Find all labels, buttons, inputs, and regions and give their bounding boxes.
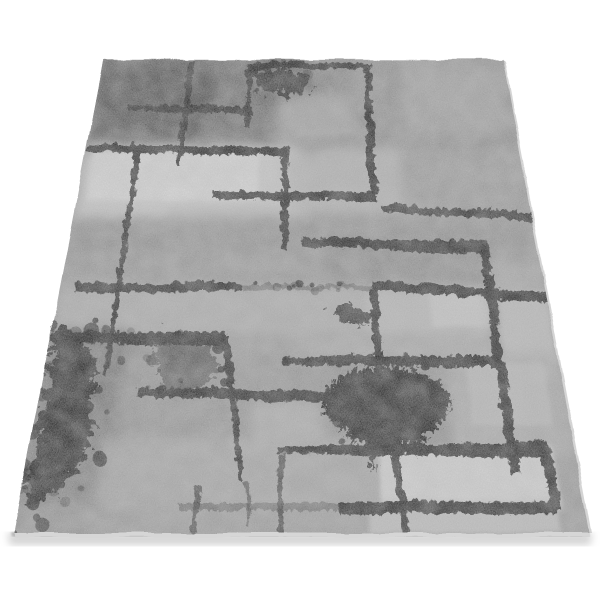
- bottom-edge-strip: [12, 532, 589, 536]
- product-photo: [0, 0, 600, 600]
- rug-pattern: [0, 40, 600, 545]
- rug: [0, 40, 600, 545]
- rug-render: [0, 0, 600, 600]
- carpet-pile-noise-light: [0, 40, 600, 545]
